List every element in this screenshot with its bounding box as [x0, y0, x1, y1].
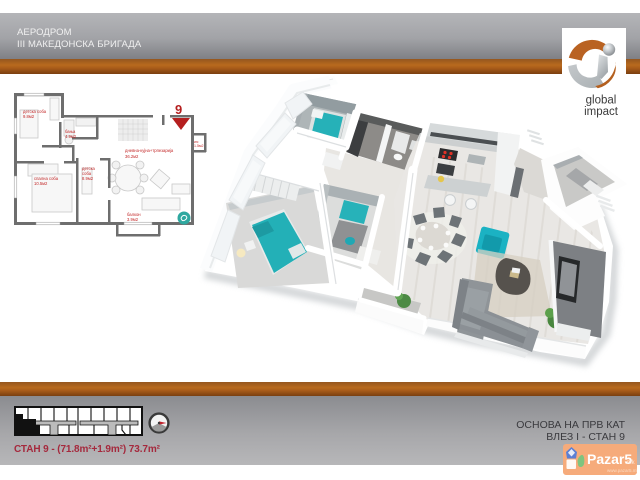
- svg-text:.mk: .mk: [625, 460, 636, 466]
- svg-text:global: global: [586, 95, 617, 107]
- svg-text:impact: impact: [584, 106, 619, 118]
- svg-text:www.pazar5.mk: www.pazar5.mk: [607, 468, 637, 473]
